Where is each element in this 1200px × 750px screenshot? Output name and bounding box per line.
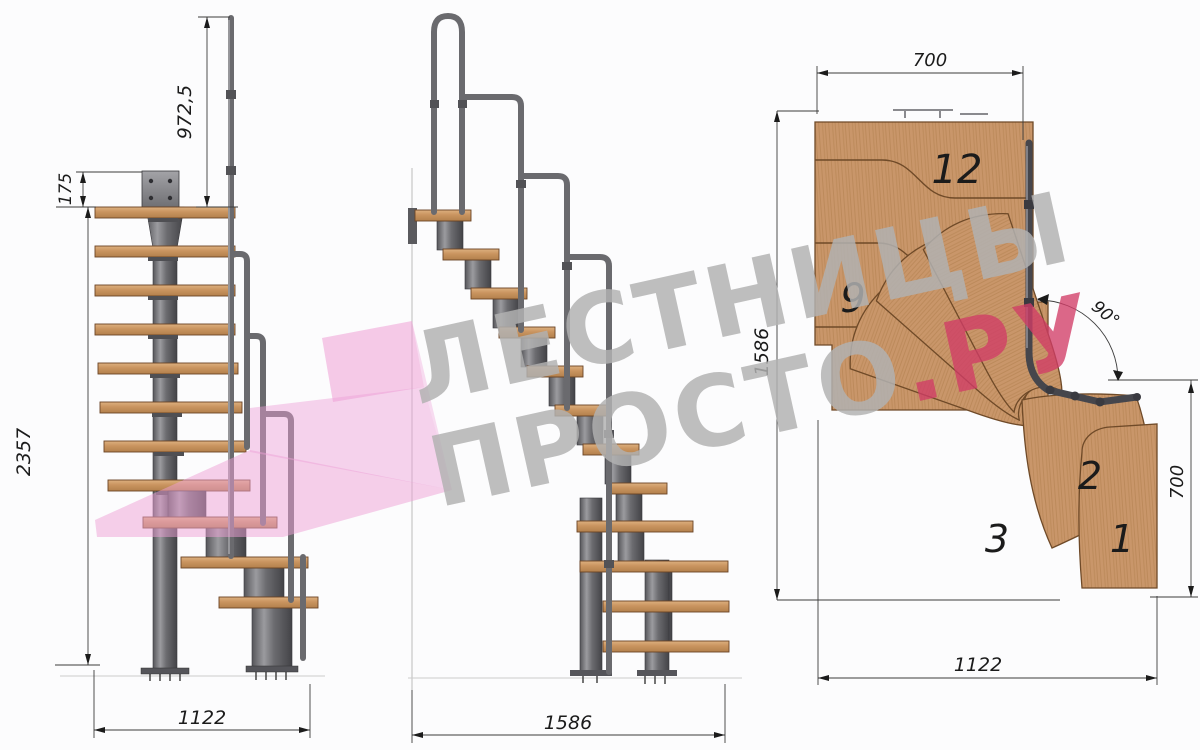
spine-modules [437, 221, 672, 642]
watermark-arrow [95, 321, 452, 537]
wall-mount-plate [142, 171, 179, 207]
column-base-plate [570, 670, 612, 676]
spine-module [244, 568, 284, 597]
tread-1 [1079, 424, 1157, 588]
step-number-2: 2 [1078, 454, 1102, 498]
dim-overall-width: 1122 [954, 654, 1002, 676]
rail-joint [226, 90, 236, 99]
plan-view: 12 9 3 2 1 [751, 50, 1198, 685]
dim-mount-plate: 175 [56, 173, 76, 205]
staircase-drawing-page: 972,5 175 2357 1122 [0, 0, 1200, 750]
anchor-bolts [583, 676, 665, 684]
anchor-bolts [150, 674, 180, 681]
front-elevation-view: 1586 [408, 16, 742, 743]
base-plate [246, 666, 298, 672]
step-number-9: 9 [840, 276, 865, 322]
central-column [153, 252, 177, 670]
step-number-3: 3 [985, 517, 1009, 561]
dim-total-height: 2357 [13, 428, 35, 476]
dim-turn-angle: 90° [1087, 297, 1123, 332]
base-plate [637, 670, 677, 676]
dim-run-length-front: 1586 [544, 712, 592, 734]
dim-exit-width: 700 [1167, 465, 1188, 499]
treads-front [415, 210, 729, 652]
dim-handrail-height: 972,5 [174, 85, 196, 139]
side-elevation-view: 972,5 175 2357 1122 [13, 17, 325, 738]
base-module [252, 608, 292, 668]
support-post [645, 560, 669, 672]
rail-joint [226, 166, 236, 175]
step-number-12: 12 [932, 147, 983, 193]
column-base-plate [141, 668, 189, 674]
dim-run-length-side: 1122 [178, 707, 226, 729]
dim-overall-length: 1586 [751, 328, 773, 376]
dim-landing-width: 700 [913, 50, 947, 71]
staircase-technical-drawing: 972,5 175 2357 1122 [0, 0, 1200, 750]
step-number-1: 1 [1110, 517, 1134, 561]
wall-bracket-plan [893, 110, 988, 118]
